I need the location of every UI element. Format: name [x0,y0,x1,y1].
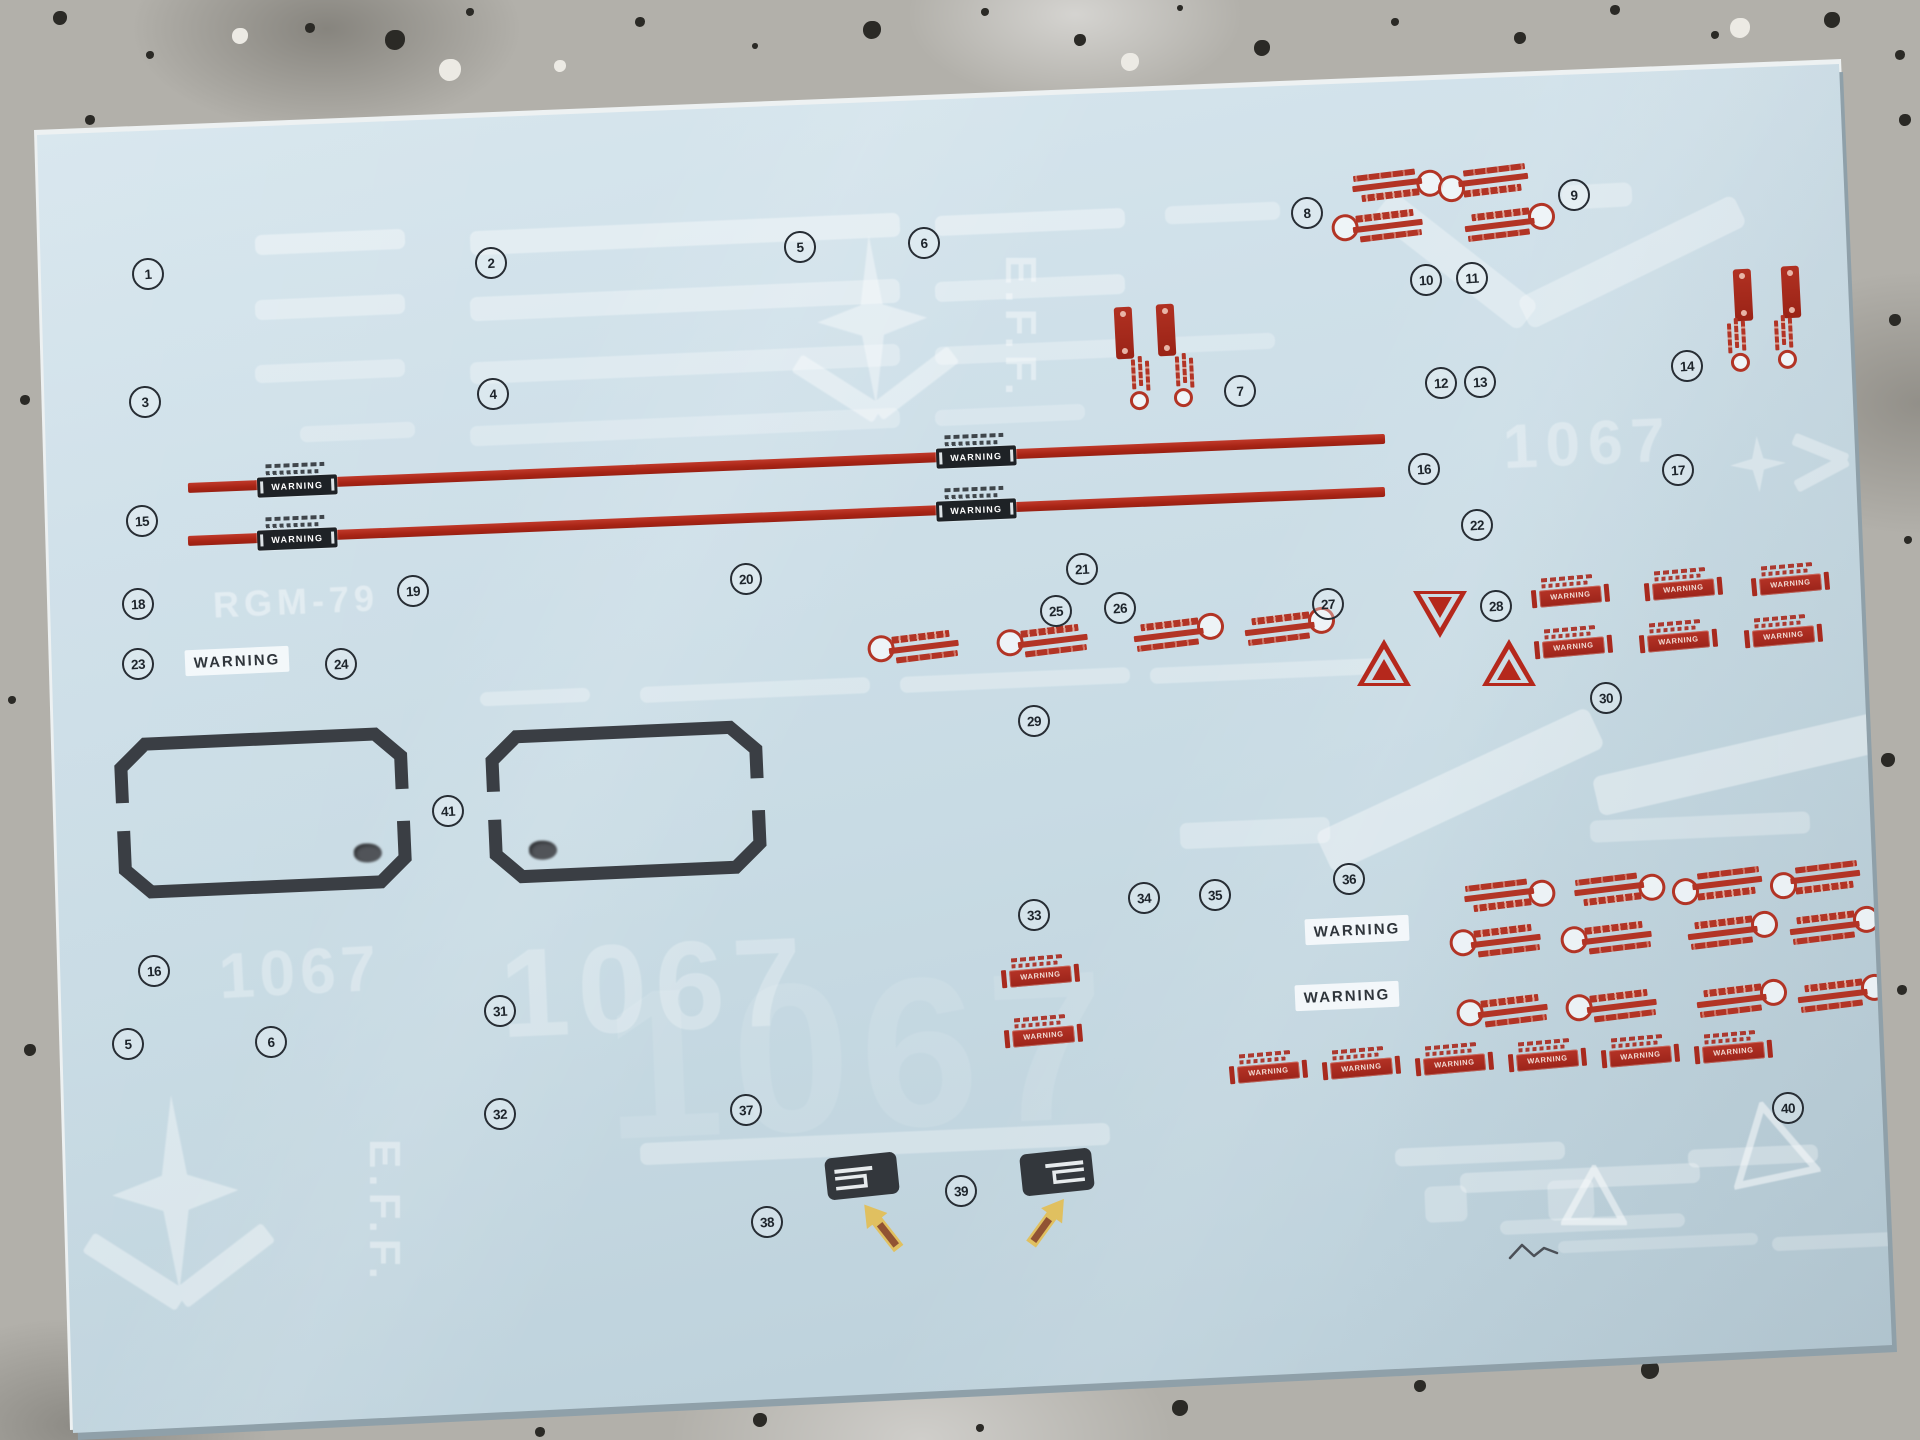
red-warning-plate: WARNING [1609,1045,1672,1067]
ghost-text-value: 1067 [1502,406,1675,482]
surface-speck [146,51,154,59]
marker-number: 27 [1321,596,1336,612]
red-warning-decal: WARNING [1529,623,1617,659]
white-warning-text: WARNING [1303,986,1390,1007]
ghost-decal-mark [1180,817,1331,850]
caution-microtext [944,433,1006,447]
marker-number: 9 [1570,187,1578,202]
panel-frame-decal [484,719,768,885]
surface-speck [1514,32,1526,44]
warning-plate-text: WARNING [271,533,323,544]
caution-microtext [944,486,1006,500]
marker-number: 19 [406,583,421,599]
lock-ring [1436,174,1466,204]
ghost-decal-mark [640,677,870,703]
marker-number: 32 [493,1106,508,1122]
surface-speck [1177,5,1183,11]
surface-speck [554,60,566,72]
red-warning-decal: WARNING [1689,1028,1777,1064]
squiggle-art [1508,1240,1560,1262]
marker-number: 5 [796,239,804,254]
red-warning-plate: WARNING [1516,1049,1579,1071]
lock-text-bar [1795,881,1853,895]
red-warning-text: WARNING [1763,630,1804,641]
tab-art [1019,1147,1095,1196]
armor-lock-art [1551,859,1667,914]
lock-text-bar [1473,898,1531,912]
decal-number-marker: 8 [1290,196,1324,230]
decal-number-marker: 34 [1127,881,1161,915]
red-warning-plate: WARNING [1759,573,1822,595]
red-warning-decal: WARNING [1410,1040,1498,1076]
decal-sheet-photo: 1234567891011121314151617181920212223242… [0,0,1920,1440]
ghost-decal-mark [1165,333,1276,354]
ghost-star-arrow [1728,418,1872,505]
lock-stripe [1734,318,1740,348]
armor-lock-decal [1559,912,1675,967]
marker-number: 11 [1465,270,1479,286]
emblem-wing-right [174,1223,276,1308]
red-warning-decal: WARNING [1503,1036,1591,1072]
surface-speck [1904,536,1912,544]
lock-ring [1777,349,1797,369]
red-warning-plate: WARNING [1652,578,1715,600]
red-pill-decal [1781,266,1802,319]
lock-text-bar [1583,892,1641,906]
ghost-triangle-art [1718,1093,1821,1191]
surface-speck [232,28,248,44]
red-warning-text: WARNING [1550,590,1591,601]
decal-number-marker: 3 [128,385,162,419]
sheet-items: 1234567891011121314151617181920212223242… [0,0,1920,1440]
ghost-decal-mark [900,667,1130,693]
decal-number-marker: 36 [1332,862,1366,896]
marker-number: 24 [334,656,349,672]
red-side-bar [1508,1054,1515,1072]
lock-ring [1195,611,1225,641]
surface-speck [85,115,95,125]
red-warning-text: WARNING [1341,1062,1382,1073]
ghost-decal-mark [935,404,1086,427]
marker-number: 16 [1417,461,1432,477]
armor-lock-art [1559,912,1675,967]
red-warning-text: WARNING [1620,1050,1661,1061]
armor-lock-decal [1674,975,1790,1030]
surface-speck [635,17,645,27]
surface-speck [1172,1400,1188,1416]
arrow-art [854,1196,909,1256]
marker-number: 14 [1680,358,1695,374]
lock-stripe [1788,318,1794,348]
surface-speck [535,1427,545,1437]
armor-lock-art [1767,902,1883,957]
armor-lock-art [1564,980,1680,1035]
warning-plate-text: WARNING [950,451,1002,462]
star-icon [1729,435,1788,494]
red-side-bar [1322,1062,1329,1080]
yellow-arrow-decal [854,1196,912,1260]
surface-speck [1897,985,1907,995]
armor-lock-decal [1551,859,1667,914]
vertical-lock-decal [1770,314,1799,367]
decal-number-marker: 18 [121,587,155,621]
ghost-text: E.F.F. [995,255,1045,401]
lock-stripe [1741,321,1747,351]
red-warning-plate: WARNING [1702,1041,1765,1063]
decal-number-marker: 32 [483,1097,517,1131]
decal-number-marker: 1 [131,257,165,291]
decal-number-marker: 10 [1409,263,1443,297]
surface-speck [1074,34,1086,46]
decal-number-marker: 35 [1198,878,1232,912]
red-side-bar [1488,1052,1495,1070]
ghost-eff-emblem [79,1091,273,1329]
marker-number: 6 [267,1034,275,1049]
ghost-text: 1067 [1502,405,1675,483]
caution-microtext [265,462,327,476]
armor-lock-decal [1455,985,1571,1040]
decal-number-marker: 17 [1661,453,1695,487]
warning-plate: WARNING [936,445,1017,468]
ghost-decal-mark [255,229,406,256]
ghost-decal-mark [1150,658,1380,684]
red-warning-text: WARNING [1553,641,1594,652]
red-side-bar [1395,1056,1402,1074]
ghost-triangle-outline [1561,1165,1627,1231]
ghost-text: 1067 [217,931,383,1013]
lock-stripe [1774,320,1780,350]
surface-speck [1895,50,1905,60]
ghost-decal-mark [1590,811,1811,843]
decal-number-marker: 27 [1311,587,1345,621]
arrow-band-lower [1793,454,1850,493]
marker-number: 5 [124,1036,132,1051]
ghost-decal-mark [1558,1233,1758,1254]
marker-number: 2 [487,255,495,270]
red-side-bar [1004,1030,1011,1048]
ghost-text-value: E.F.F. [996,255,1045,401]
red-side-bar [1001,970,1008,988]
dark-tab-decal [1019,1147,1095,1196]
marker-number: 33 [1027,907,1042,923]
red-side-bar [1302,1060,1309,1078]
surface-speck [466,8,474,16]
red-warning-decal: WARNING [1634,617,1722,653]
decal-number-marker: 14 [1670,349,1704,383]
red-warning-decal: WARNING [1526,572,1614,608]
red-side-bar [1229,1066,1236,1084]
surface-speck [1414,1380,1426,1392]
marker-number: 4 [489,386,497,401]
marker-number: 22 [1470,517,1485,533]
decal-number-marker: 20 [729,562,763,596]
red-side-bar [1674,1044,1681,1062]
ghost-decal-mark [300,421,416,442]
marker-number: 6 [920,235,928,250]
decal-number-marker: 21 [1065,552,1099,586]
marker-number: 26 [1113,600,1128,616]
red-hazard-stripe [188,487,1385,546]
armor-lock-decal [1767,847,1883,902]
frame-art [484,719,768,885]
red-side-bar [1817,624,1824,642]
armor-lock-decal [1775,970,1891,1025]
armor-lock-art [1442,199,1558,254]
vertical-lock-art [1723,317,1752,370]
lock-stripe [1189,358,1195,388]
ghost-text: E.F.F. [359,1139,409,1285]
red-warning-decal: WARNING [1639,565,1727,601]
red-warning-decal: WARNING [1317,1044,1405,1080]
marker-number: 37 [739,1102,754,1118]
lock-ring [1670,877,1700,907]
marker-number: 23 [131,656,146,672]
marker-number: 39 [954,1183,969,1199]
marker-number: 3 [141,394,149,409]
red-warning-decal: WARNING [1596,1032,1684,1068]
armor-lock-art [1775,970,1891,1025]
armor-lock-decal [1665,907,1781,962]
decal-number-marker: 22 [1460,508,1494,542]
vertical-lock-decal [1723,317,1752,370]
red-pill-decal [1733,269,1754,322]
armor-lock-art [1448,915,1564,970]
red-side-bar [1531,590,1538,608]
surface-speck [53,11,67,25]
stripe-warning-label: WARNING [933,485,1018,521]
vertical-lock-decal [1171,352,1200,405]
lock-stripe [1131,359,1137,389]
decal-number-marker: 2 [474,246,508,280]
surface-speck [1899,114,1911,126]
pencil-squiggle [1508,1240,1560,1267]
marker-number: 31 [493,1003,508,1019]
marker-number: 25 [1049,603,1064,619]
decal-number-marker: 29 [1017,704,1051,738]
red-warning-text: WARNING [1770,578,1811,589]
ghost-decal-mark [1165,202,1281,225]
dark-tab-decal [824,1151,900,1200]
emblem-wing-right [871,346,959,420]
white-warning-text: WARNING [193,651,280,672]
decal-number-marker: 24 [324,647,358,681]
warning-plate: WARNING [257,474,338,497]
surface-speck [20,395,30,405]
marker-number: 18 [131,596,146,612]
vertical-lock-decal [1127,355,1156,408]
surface-speck [1121,53,1139,71]
marker-number: 7 [1236,383,1244,398]
red-warning-text: WARNING [1658,635,1699,646]
lock-text-bar [1463,184,1521,198]
decal-number-marker: 4 [476,377,510,411]
surface-speck [1730,18,1750,38]
warning-plate: WARNING [257,527,338,550]
marker-number: 38 [760,1214,775,1230]
armor-lock-art [866,621,982,676]
marker-number: 17 [1671,462,1686,478]
surface-speck [8,696,16,704]
warning-plate: WARNING [936,498,1017,521]
armor-lock-art [1767,847,1883,902]
marker-number: 35 [1208,887,1223,903]
marker-number: 34 [1137,890,1152,906]
ghost-decal-mark [480,688,591,707]
surface-speck [1889,314,1901,326]
red-warning-plate: WARNING [1539,585,1602,607]
armor-lock-decal [866,621,982,676]
armor-lock-decal [1767,902,1883,957]
surface-speck [305,23,315,33]
surface-speck [1711,31,1719,39]
armor-lock-decal [1442,199,1558,254]
warning-plate-text: WARNING [271,480,323,491]
decal-number-marker: 13 [1463,365,1497,399]
marker-number: 12 [1434,375,1449,391]
vertical-lock-art [1127,355,1156,408]
frame-art [113,726,414,901]
ghost-text: RGM-79 [212,577,380,626]
red-pill-decal [1156,304,1177,357]
ghost-decal-mark [1395,1141,1566,1166]
ghost-eff-emblem [789,232,958,439]
ghost-wing-band [1315,707,1605,874]
ghost-triangle-art [1561,1165,1627,1226]
lock-stripe [1182,353,1188,383]
decal-number-marker: 16 [137,954,171,988]
white-warning-decal: WARNING [1304,915,1409,946]
decal-number-marker: 23 [121,647,155,681]
surface-speck [753,1413,767,1427]
white-warning-decal: WARNING [1294,981,1399,1012]
armor-lock-art [1674,975,1790,1030]
red-side-bar [1744,630,1751,648]
armor-lock-decal [1448,915,1564,970]
lock-stripe [1175,356,1181,386]
red-side-bar [1639,635,1646,653]
red-side-bar [1644,583,1651,601]
decal-number-marker: 7 [1223,374,1257,408]
ghost-triangle-outline [1718,1093,1822,1195]
armor-lock-art [1441,865,1557,920]
red-side-bar [1717,577,1724,595]
yellow-arrow-decal [1018,1191,1075,1256]
red-side-bar [1712,629,1719,647]
lock-stripe [1727,323,1733,353]
lock-stripe [1145,361,1151,391]
ghost-decal-mark [255,359,406,384]
marker-number: 8 [1303,205,1311,220]
marker-number: 40 [1781,1100,1796,1116]
red-side-bar [1581,1048,1588,1066]
lock-ring [1129,391,1149,411]
lock-stripe [1138,356,1144,386]
marker-number: 36 [1342,871,1357,887]
vertical-lock-art [1171,352,1200,405]
red-warning-text: WARNING [1023,1030,1064,1041]
armor-lock-decal [1435,150,1551,205]
decal-sheet: 1234567891011121314151617181920212223242… [0,0,1920,1440]
surface-speck [863,21,881,39]
decal-number-marker: 6 [254,1025,288,1059]
decal-number-marker: 30 [1589,681,1623,715]
red-side-bar [1607,635,1614,653]
ghost-text-value: RGM-79 [212,577,380,625]
decal-number-marker: 28 [1479,589,1513,623]
red-side-bar [1767,1040,1774,1058]
surface-speck [1254,40,1270,56]
red-hazard-stripe [188,434,1385,493]
surface-speck [1610,5,1620,15]
red-side-bar [1077,1024,1084,1042]
armor-lock-art [1435,150,1551,205]
armor-lock-decal [1564,980,1680,1035]
marker-number: 13 [1473,374,1488,390]
surface-speck [24,1044,36,1056]
vertical-lock-art [1770,314,1799,367]
red-side-bar [1694,1046,1701,1064]
marker-number: 10 [1419,272,1434,288]
red-warning-plate: WARNING [1647,630,1710,652]
red-warning-plate: WARNING [1330,1057,1393,1079]
red-warning-decal: WARNING [1746,560,1834,596]
red-warning-plate: WARNING [1423,1053,1486,1075]
warning-triangle-decal [1357,639,1411,686]
marker-number: 28 [1489,598,1504,614]
marker-number: 41 [441,803,456,819]
panel-frame-decal [113,726,414,901]
ghost-decal-mark [935,208,1126,236]
lock-text-bar [1697,887,1755,901]
decal-number-marker: 16 [1407,452,1441,486]
red-warning-text: WARNING [1020,970,1061,981]
arrow-art [1020,1191,1074,1252]
red-warning-text: WARNING [1248,1066,1289,1077]
armor-lock-decal [1441,865,1557,920]
armor-lock-art [1455,985,1571,1040]
marker-number: 20 [739,571,754,587]
surface-speck [439,59,461,81]
decal-number-marker: 41 [431,794,465,828]
ghost-text-value: E.F.F. [360,1139,409,1285]
red-side-bar [1601,1050,1608,1068]
white-warning-decal: WARNING [184,646,289,677]
lock-stripe [1781,315,1787,345]
red-warning-text: WARNING [1527,1054,1568,1065]
red-warning-plate: WARNING [1237,1061,1300,1083]
surface-speck [1391,18,1399,26]
red-side-bar [1604,584,1611,602]
white-warning-text: WARNING [1313,920,1400,941]
red-warning-plate: WARNING [1542,636,1605,658]
armor-lock-art [1665,907,1781,962]
red-side-bar [1824,572,1831,590]
ghost-decal-mark [255,294,406,321]
decal-number-marker: 12 [1424,366,1458,400]
red-pill-decal [1114,307,1135,360]
marker-number: 15 [135,513,150,529]
red-warning-decal: WARNING [1739,612,1827,648]
surface-speck [752,43,758,49]
decal-number-marker: 19 [396,574,430,608]
surface-speck [1881,753,1895,767]
ghost-decal-mark [1424,1185,1468,1223]
marker-number: 1 [144,266,152,281]
surface-speck [976,1424,984,1432]
stripe-warning-label: WARNING [254,514,339,550]
decal-number-marker: 39 [944,1174,978,1208]
lock-ring [1526,201,1556,231]
